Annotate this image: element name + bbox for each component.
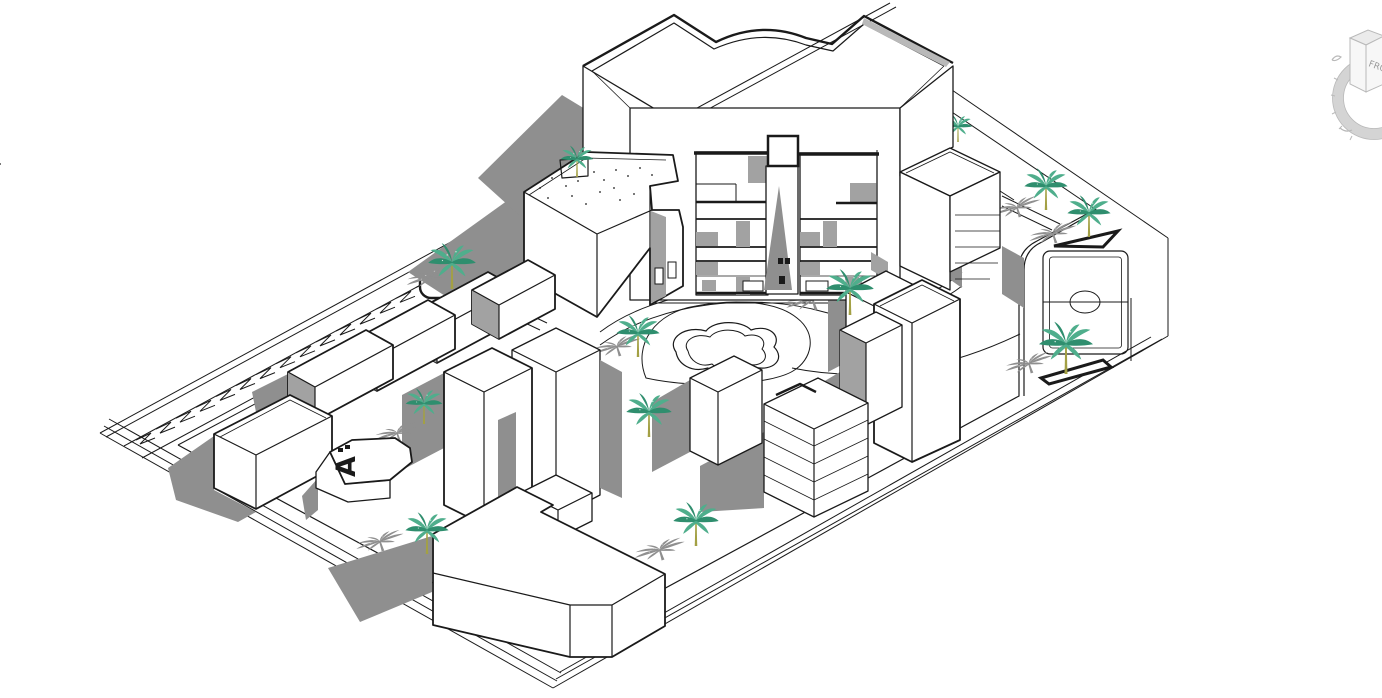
palm-plaza-west — [616, 315, 659, 357]
viewcube-left-face[interactable] — [1350, 38, 1366, 92]
apartment-block-left — [694, 152, 770, 295]
revit-3d-viewport[interactable]: A FRONT — [0, 0, 1382, 698]
court-planter-south — [1041, 360, 1111, 384]
apartment-facades — [694, 136, 888, 295]
viewcube-navigation[interactable]: FRONT — [1331, 30, 1382, 140]
roof-vent — [345, 445, 350, 449]
apartment-block-right — [798, 153, 879, 295]
building-east-midrise — [900, 148, 1000, 290]
building-stippled-roof — [0, 152, 683, 317]
palm-north-east-1 — [1024, 168, 1067, 210]
building-a-label: A — [331, 456, 362, 477]
buildings: A — [0, 15, 1000, 657]
apartment-stair-tower — [764, 136, 798, 294]
palm-south-center — [673, 502, 718, 546]
door — [655, 268, 663, 284]
roof-vent — [338, 448, 343, 452]
palm-north-east-2 — [1067, 195, 1110, 237]
site-model-canvas[interactable]: A FRONT — [0, 0, 1382, 698]
door — [668, 262, 676, 278]
